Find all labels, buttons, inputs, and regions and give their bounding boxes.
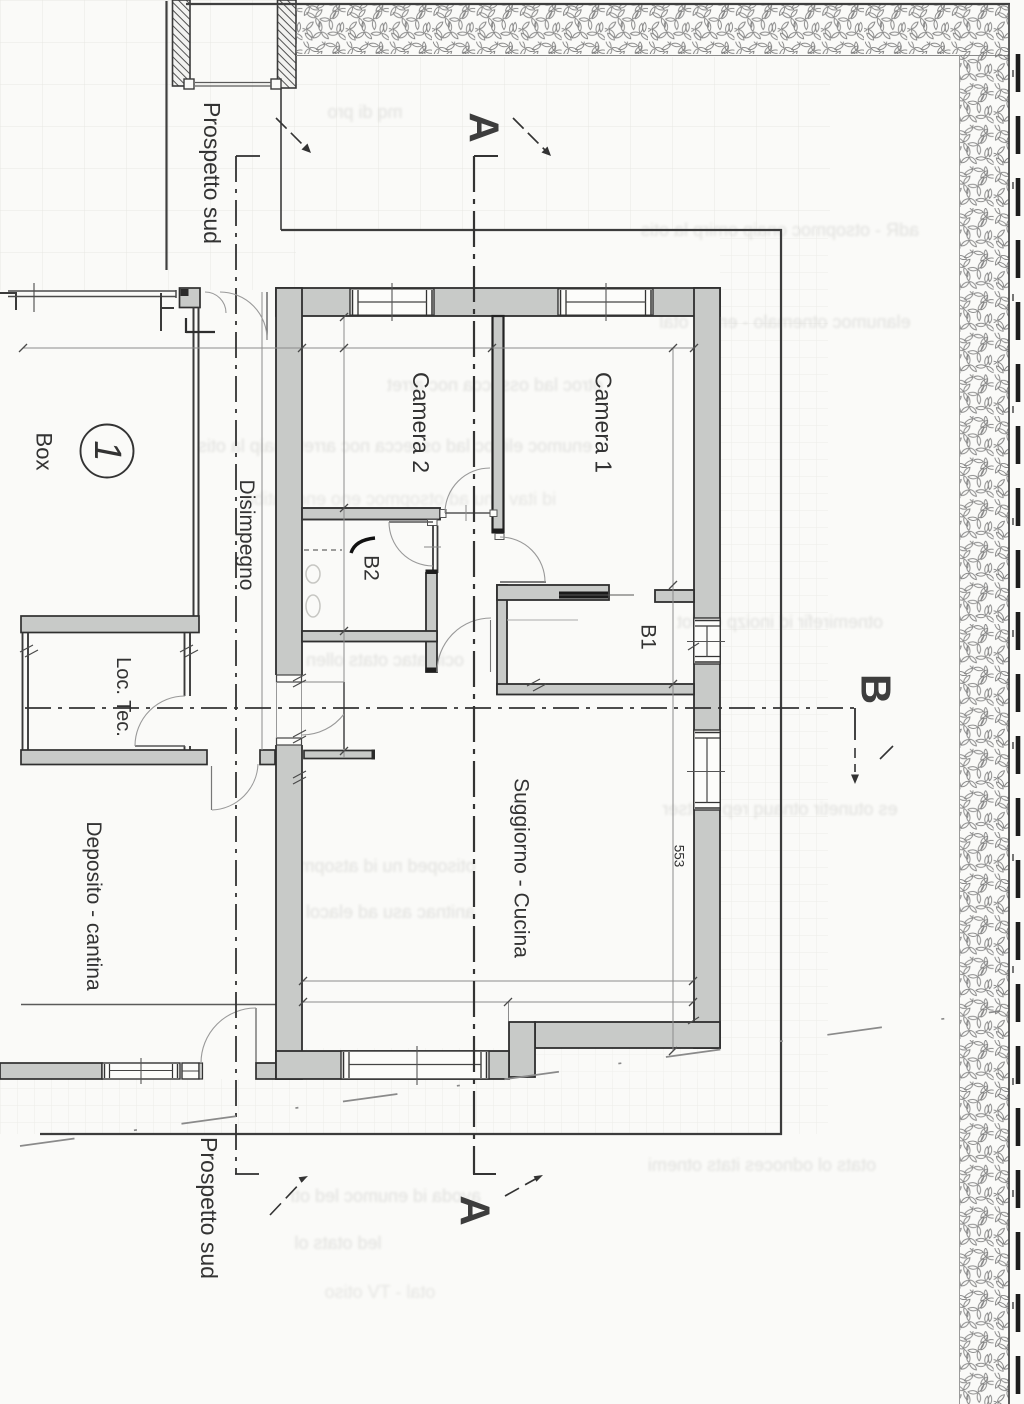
svg-text:B: B [853, 674, 900, 704]
svg-text:Camera 2: Camera 2 [408, 372, 434, 473]
svg-text:Suggiorno - Cucina: Suggiorno - Cucina [510, 778, 533, 958]
svg-text:Box: Box [32, 433, 57, 471]
svg-text:Loc. Tec.: Loc. Tec. [112, 657, 134, 737]
svg-text:B2: B2 [360, 555, 383, 581]
svg-text:Camera 1: Camera 1 [591, 372, 617, 473]
svg-text:Prospetto sud: Prospetto sud [196, 1137, 222, 1279]
svg-text:A: A [452, 1195, 499, 1225]
svg-text:Prospetto sud: Prospetto sud [199, 102, 225, 244]
svg-text:A: A [461, 112, 508, 142]
svg-text:1: 1 [86, 440, 128, 461]
svg-text:Deposito - cantina: Deposito - cantina [82, 821, 105, 991]
svg-text:Disimpegno: Disimpegno [235, 480, 258, 591]
svg-text:B1: B1 [637, 624, 660, 650]
svg-text:mq di pro: mq di pro [327, 102, 402, 122]
svg-text:enumoc elitroc lad ossecca noc: enumoc elitroc lad ossecca noc arret ona… [198, 436, 592, 456]
svg-text:led otats ol: led otats ol [294, 1233, 381, 1253]
svg-text:otats ol odnoces itats otnemi: otats ol odnoces itats otnemi [648, 1155, 876, 1175]
svg-text:otisoped nu id atsopmoc: otisoped nu id atsopmoc [280, 856, 475, 876]
svg-text:anitnac asu ad elacol nu: anitnac asu ad elacol nu [281, 902, 475, 922]
svg-text:otal - TV otiso: otal - TV otiso [325, 1282, 436, 1302]
svg-text:553: 553 [672, 845, 687, 868]
